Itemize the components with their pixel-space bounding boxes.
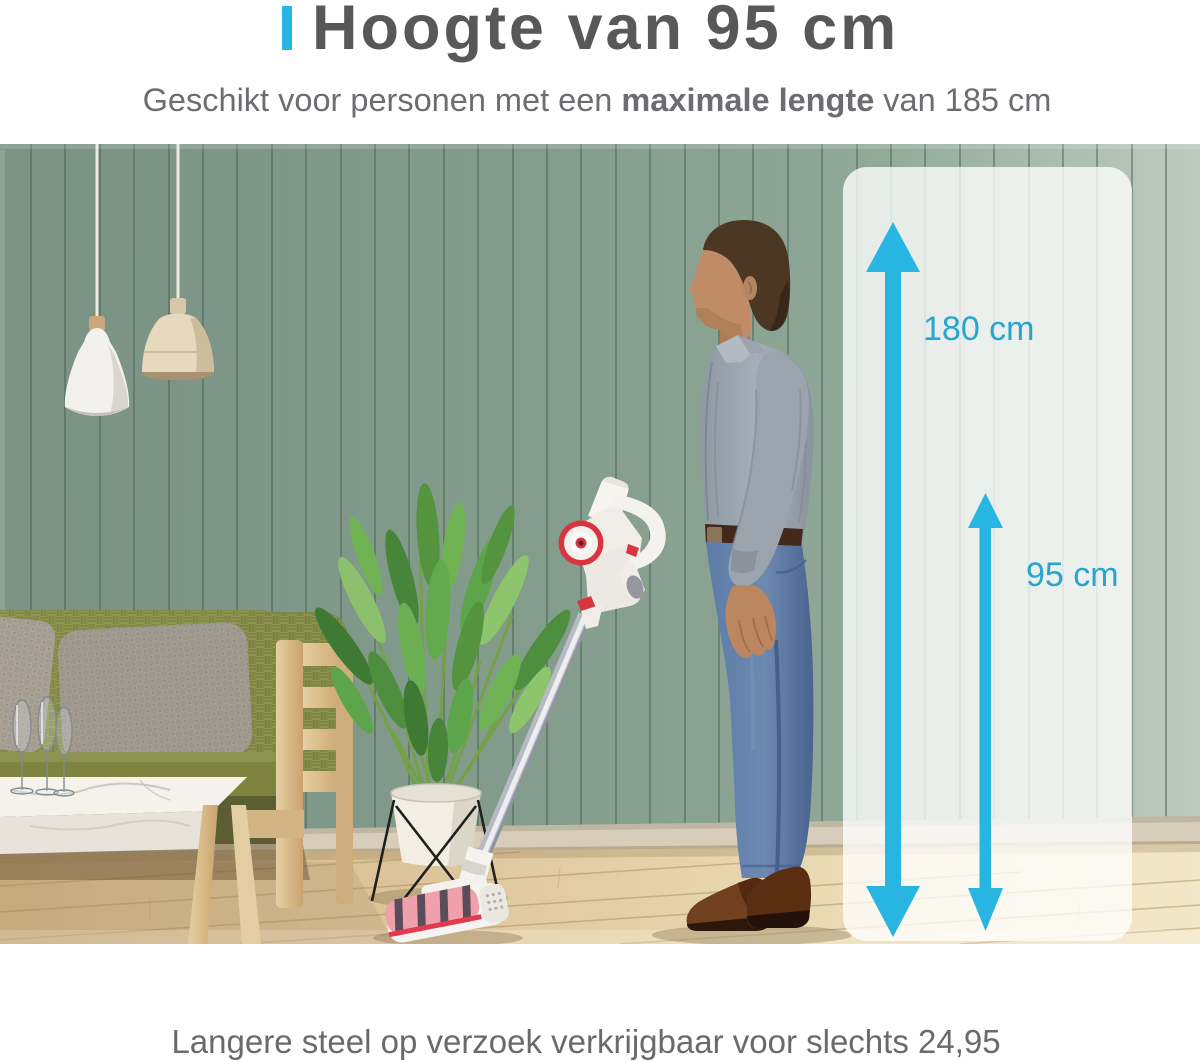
svg-text:Hoogte van 95 cm: Hoogte van 95 cm (312, 0, 899, 63)
svg-text:Geschikt voor personen met een: Geschikt voor personen met een maximale … (143, 82, 1052, 118)
svg-text:180 cm: 180 cm (923, 310, 1035, 348)
svg-text:95 cm: 95 cm (1026, 556, 1119, 594)
svg-text:Langere steel op verzoek verkr: Langere steel op verzoek verkrijgbaar vo… (171, 1023, 1000, 1060)
